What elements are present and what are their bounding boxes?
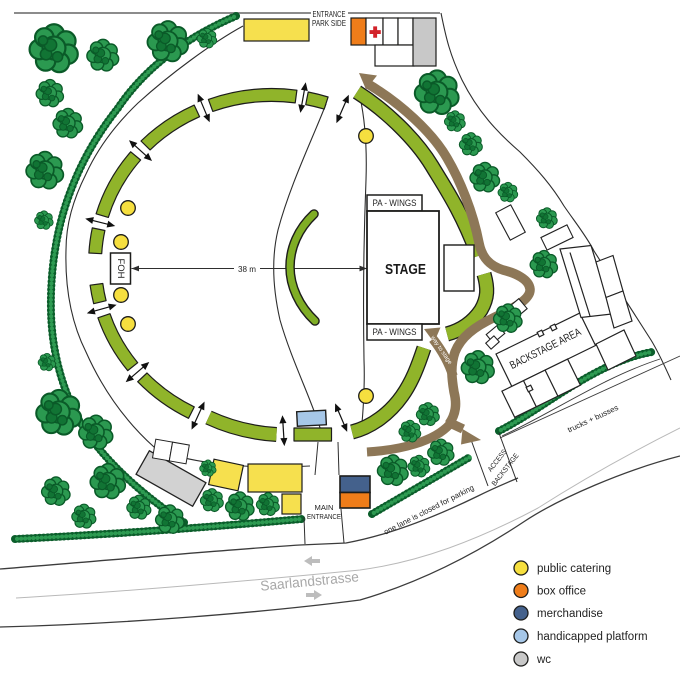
svg-text:PA - WINGS: PA - WINGS <box>373 198 417 208</box>
svg-text:PARK SIDE: PARK SIDE <box>312 18 346 28</box>
svg-text:box office: box office <box>537 586 586 598</box>
svg-text:merchandise: merchandise <box>537 608 603 620</box>
svg-text:ENTRANCE: ENTRANCE <box>307 512 341 521</box>
svg-text:38 m: 38 m <box>238 264 256 274</box>
svg-text:FOH: FOH <box>116 259 126 279</box>
svg-text:STAGE: STAGE <box>385 262 426 278</box>
svg-text:handicapped platform: handicapped platform <box>537 631 648 643</box>
svg-text:wc: wc <box>536 654 551 666</box>
svg-text:PA - WINGS: PA - WINGS <box>373 327 417 337</box>
svg-text:public catering: public catering <box>537 563 611 575</box>
svg-text:MAIN: MAIN <box>315 503 334 512</box>
